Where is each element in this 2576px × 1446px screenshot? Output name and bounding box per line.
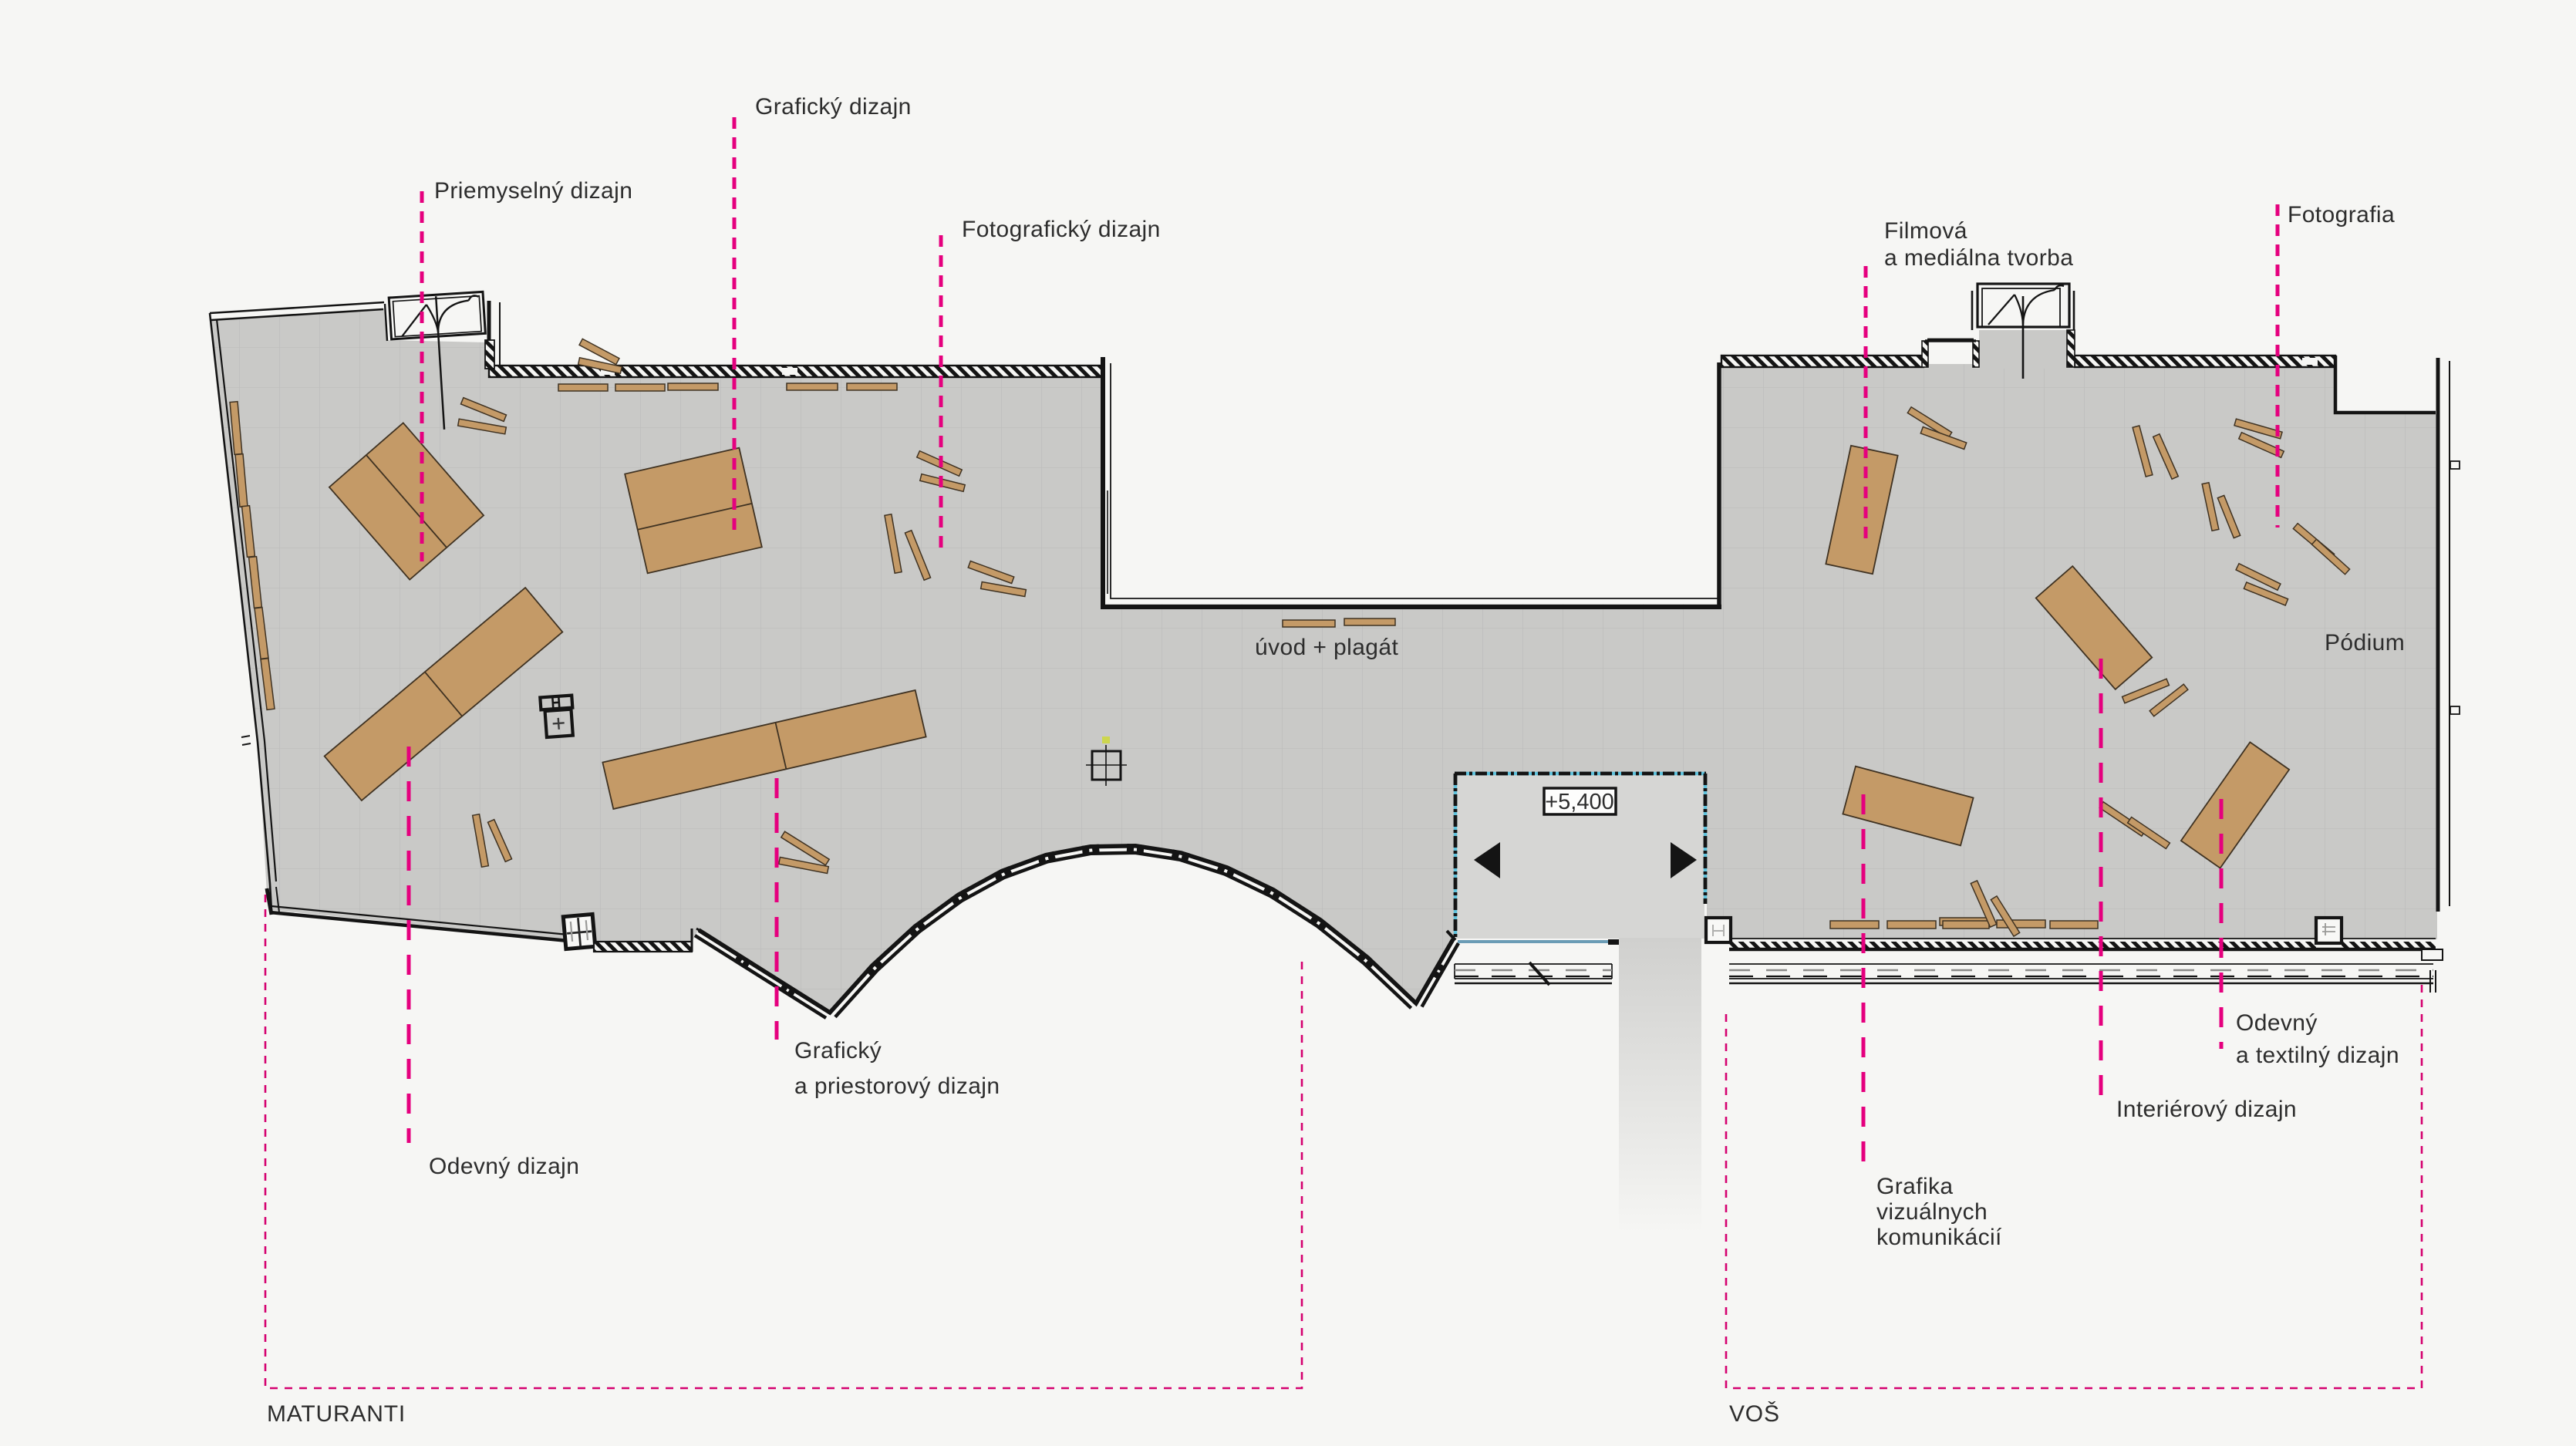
svg-text:Grafika: Grafika: [1876, 1174, 1954, 1199]
svg-text:Interiérový dizajn: Interiérový dizajn: [2116, 1097, 2297, 1122]
svg-text:MATURANTI: MATURANTI: [267, 1401, 406, 1427]
svg-text:Odevný: Odevný: [2236, 1010, 2318, 1036]
svg-text:Filmová: Filmová: [1884, 218, 1967, 244]
svg-text:vizuálnych: vizuálnych: [1876, 1199, 1988, 1225]
svg-text:a priestorový dizajn: a priestorový dizajn: [794, 1074, 1000, 1099]
svg-text:a mediálna tvorba: a mediálna tvorba: [1884, 245, 2073, 271]
svg-text:úvod + plagát: úvod + plagát: [1255, 635, 1398, 660]
svg-text:Fotografický dizajn: Fotografický dizajn: [962, 217, 1161, 242]
svg-text:komunikácií: komunikácií: [1876, 1225, 2002, 1250]
svg-text:Grafický dizajn: Grafický dizajn: [755, 94, 912, 120]
svg-text:Grafický: Grafický: [794, 1038, 882, 1063]
svg-text:a textilný dizajn: a textilný dizajn: [2236, 1043, 2399, 1068]
svg-text:VOŠ: VOŠ: [1729, 1400, 1780, 1427]
svg-text:+5,400: +5,400: [1545, 790, 1614, 814]
svg-text:Pódium: Pódium: [2325, 630, 2405, 656]
svg-text:Odevný dizajn: Odevný dizajn: [429, 1154, 579, 1179]
svg-text:Fotografia: Fotografia: [2288, 202, 2395, 228]
svg-text:Priemyselný dizajn: Priemyselný dizajn: [434, 178, 632, 204]
